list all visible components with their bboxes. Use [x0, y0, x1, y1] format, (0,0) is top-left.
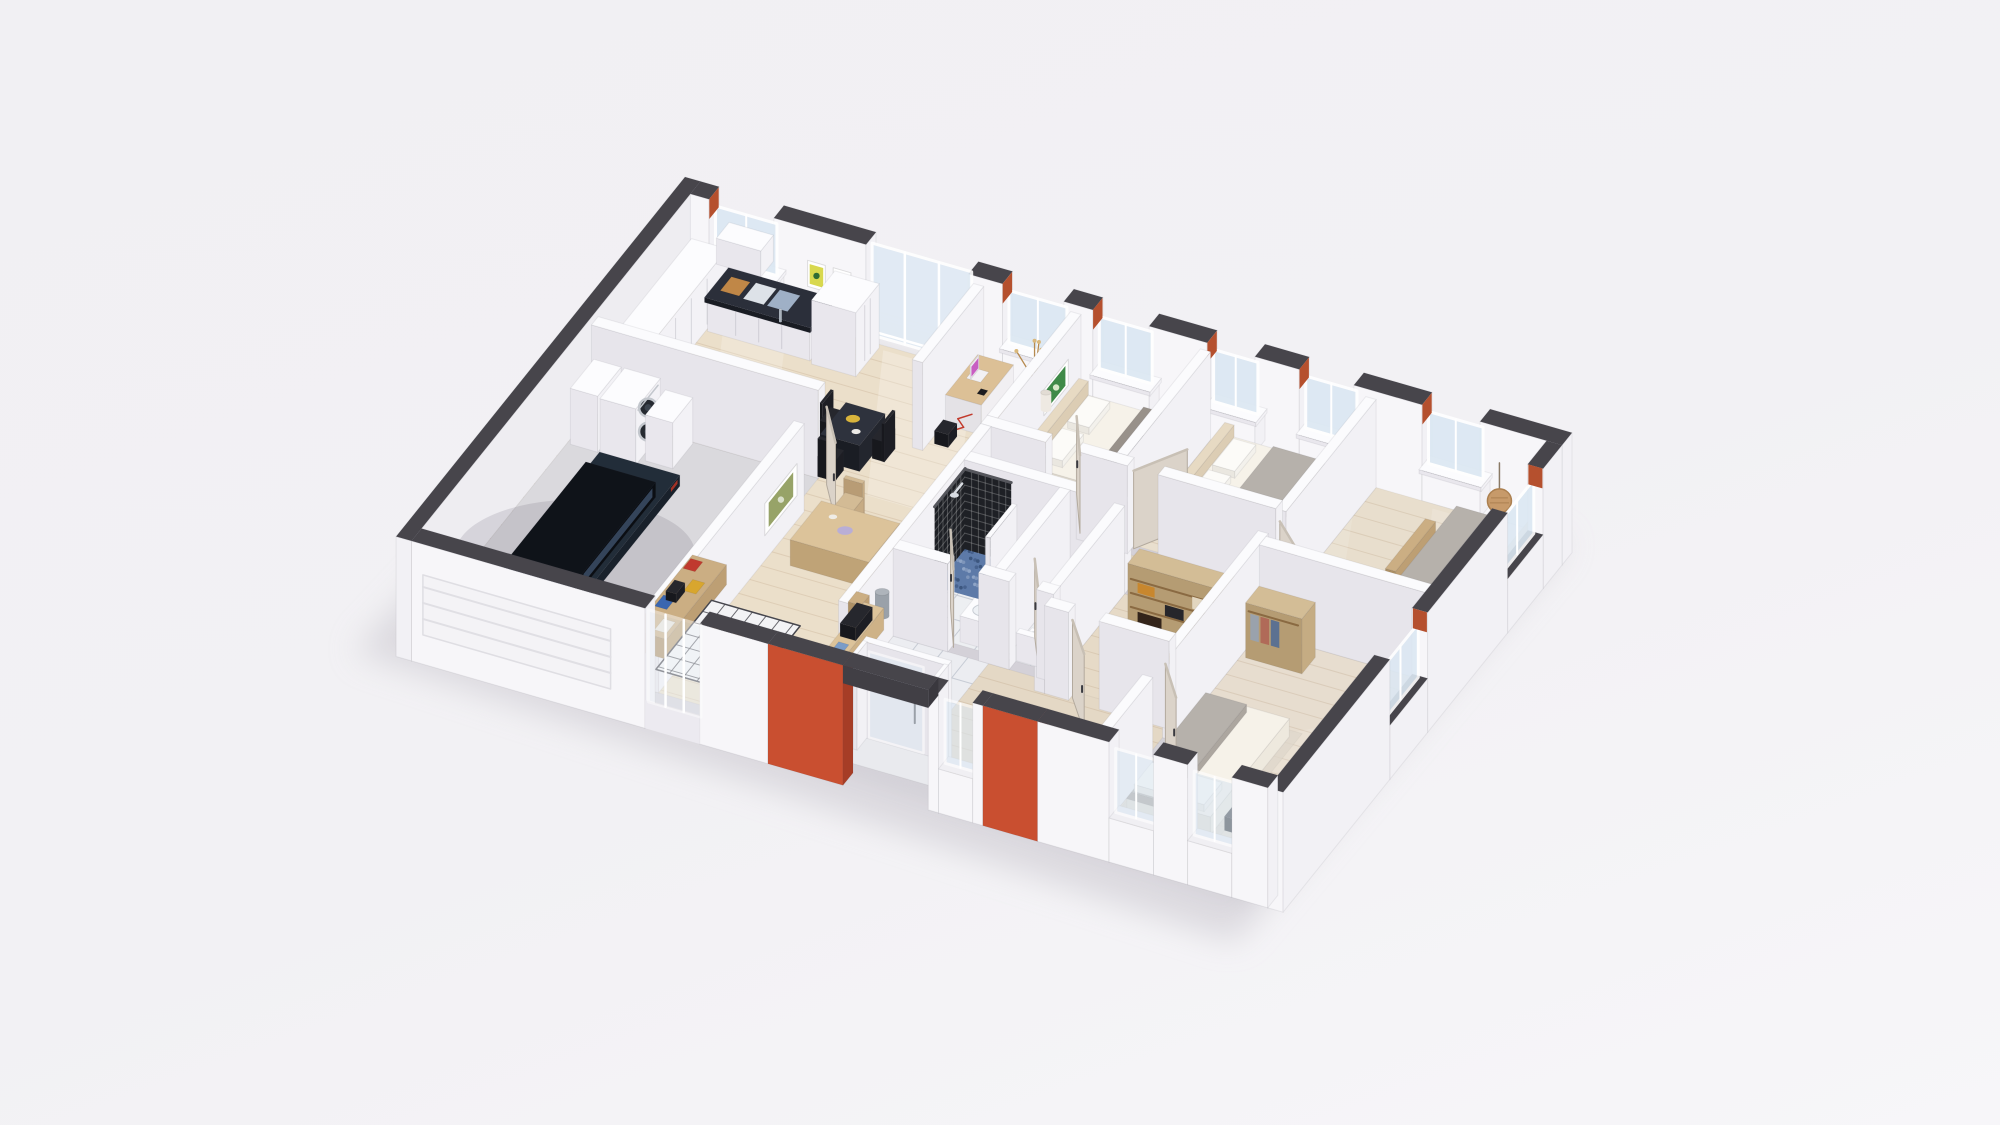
window-bedroom2-a — [1204, 331, 1267, 453]
faucet — [779, 309, 782, 322]
floorplan-3d-view — [0, 0, 2000, 1125]
clothes — [1261, 617, 1270, 645]
exterior-wall-sw — [1232, 765, 1278, 908]
plate — [829, 514, 838, 519]
living-glass-doors — [645, 610, 701, 744]
wall-bath-south-b — [979, 564, 1016, 669]
window-bedroom3 — [1419, 393, 1492, 518]
vase-small — [1041, 390, 1052, 412]
kitchen-tall-cabinet — [812, 271, 880, 377]
floorplan-3d-render — [0, 0, 2000, 1125]
fruit-plate — [846, 415, 860, 423]
clothes — [1271, 620, 1280, 649]
wall-closet-south-a — [1045, 597, 1076, 700]
purple-bowl — [837, 526, 853, 535]
red-accent-wall — [768, 631, 853, 785]
exterior-wall-sw — [1038, 709, 1120, 862]
exterior-wall-sw — [700, 612, 778, 764]
clothes — [1250, 614, 1259, 643]
bowl — [851, 429, 860, 434]
wall-bath-south-a — [893, 540, 954, 652]
